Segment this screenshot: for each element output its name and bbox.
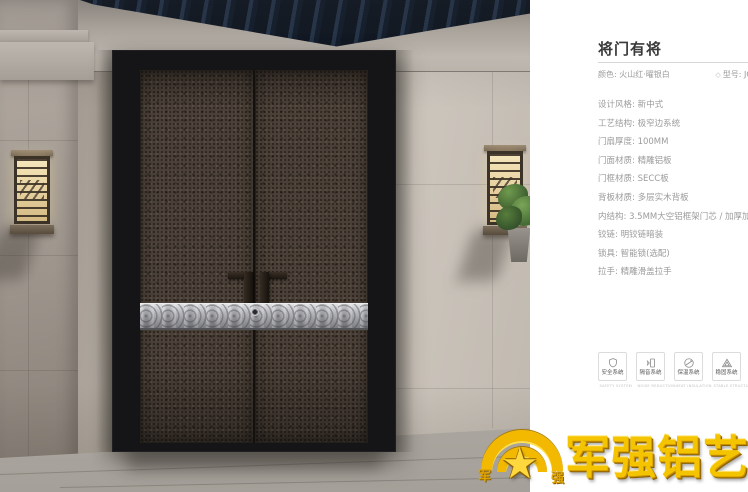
spec-row: 工艺结构: 极窄边系统: [598, 119, 748, 129]
door-handle-right: [260, 272, 269, 303]
meta-row: 颜色: 火山红·曜银白 ◇型号: JC: [598, 68, 748, 80]
spec-list: 设计风格: 新中式 工艺结构: 极窄边系统 门扇厚度: 100MM 门面材质: …: [598, 100, 748, 286]
spec-row: 背板材质: 多层实木背板: [598, 193, 748, 203]
spec-panel: 将门有将 颜色: 火山红·曜银白 ◇型号: JC 设计风格: 新中式 工艺结构:…: [530, 0, 748, 492]
spec-row: 门面材质: 精雕铝板: [598, 156, 748, 166]
spec-row: 拉手: 精雕滑盖拉手: [598, 267, 748, 277]
spec-row: 门扇厚度: 100MM: [598, 137, 748, 147]
brand-emblem: ★ 军 强: [480, 426, 564, 492]
soundproof-icon: [645, 357, 657, 369]
feature-stability: 稳固系统 STABLE STRUCTURE: [712, 352, 741, 388]
spec-row: 门框材质: SECC板: [598, 174, 748, 184]
product-title: 将门有将: [598, 38, 662, 59]
spec-row: 设计风格: 新中式: [598, 100, 748, 110]
product-catalog-page: 将门有将 颜色: 火山红·曜银白 ◇型号: JC 设计风格: 新中式 工艺结构:…: [0, 0, 748, 492]
feature-soundproof: 隔音系统 NOISE REDUCTION: [636, 352, 665, 388]
title-divider: [598, 62, 748, 63]
wall-lantern-left: [14, 150, 50, 234]
door-handle-left: [244, 272, 253, 303]
spec-row: 内结构: 3.5MM大空铝框架门芯 / 加厚加密航空铝蜂窝: [598, 212, 748, 222]
emblem-char-left: 军: [478, 465, 491, 484]
triangle-icon: [721, 357, 733, 369]
product-photo: [0, 0, 530, 492]
model-label: ◇型号: JC: [715, 69, 748, 80]
door-leaf-right: [255, 70, 368, 443]
brand-logo: ★ 军 强 军强铝艺: [470, 424, 748, 492]
brand-name: 军强铝艺: [565, 432, 748, 484]
plant-pot: [506, 228, 530, 262]
star-icon: ★: [501, 440, 539, 488]
thermal-icon: [683, 357, 695, 369]
lock-cylinder: [251, 308, 259, 316]
feature-insulation: 保温系统 HEAT INSULATION: [674, 352, 703, 388]
door-center-seam: [253, 70, 255, 443]
door-frame: [112, 50, 396, 452]
door-leaf-left: [140, 70, 254, 443]
shield-icon: [607, 357, 619, 369]
spec-row: 铰链: 明铰链暗装: [598, 230, 748, 240]
silver-carved-band: [140, 303, 368, 330]
feature-badges: 安全系统 SAFETY SYSTEM 隔音系统 NOISE REDUCTION: [598, 352, 741, 388]
color-label: 颜色: 火山红·曜银白: [598, 69, 670, 80]
potted-plant: [496, 184, 530, 264]
feature-safety: 安全系统 SAFETY SYSTEM: [598, 352, 627, 388]
diamond-icon: ◇: [715, 71, 720, 79]
spec-row: 锁具: 智能锁(选配): [598, 249, 748, 259]
emblem-char-right: 强: [551, 467, 564, 486]
